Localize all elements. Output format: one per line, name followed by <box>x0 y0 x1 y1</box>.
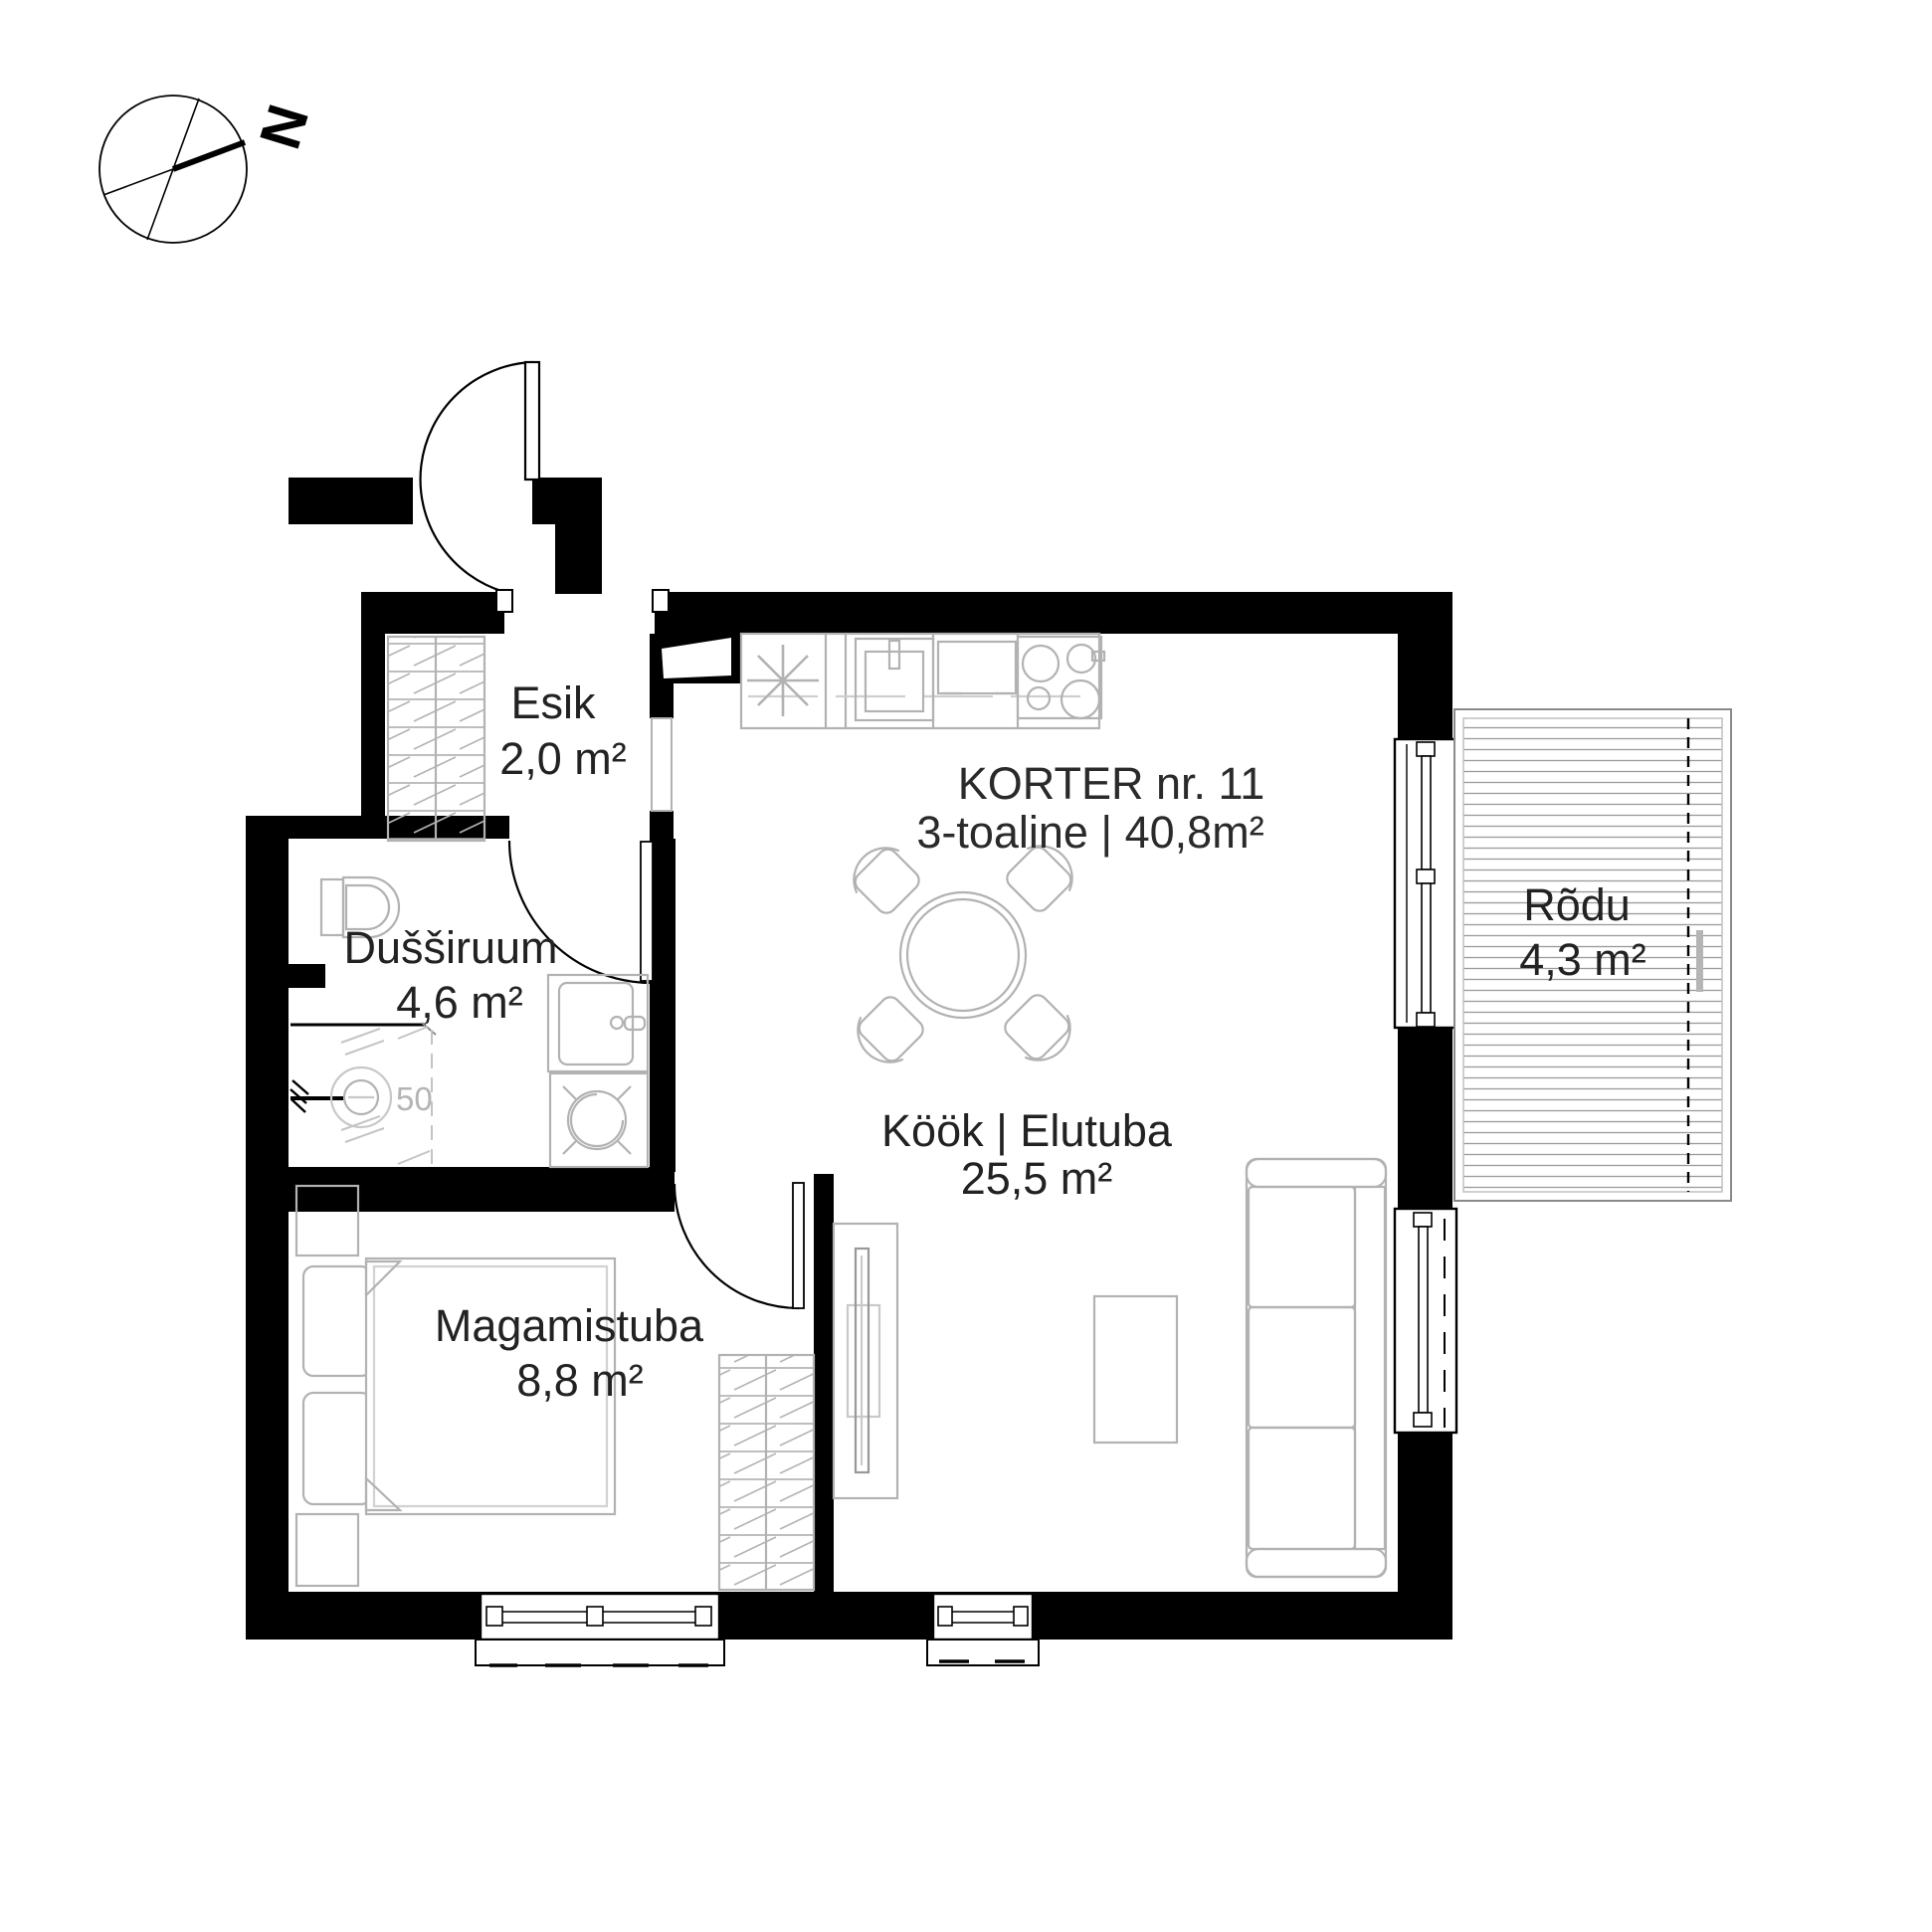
entrance-door-jamb-right <box>653 590 669 612</box>
bedroom-wardrobe <box>719 1355 814 1590</box>
room-area: 4,3 m² <box>1519 934 1646 985</box>
wall-top-main <box>655 592 1452 634</box>
room-name: Rõdu <box>1523 879 1631 930</box>
room-name: Köök | Elutuba <box>881 1105 1173 1156</box>
dining-table <box>900 892 1026 1018</box>
wall-shower-right <box>650 839 676 1172</box>
floor-plan-canvas: N <box>0 0 1932 1932</box>
room-area: 25,5 m² <box>961 1153 1113 1204</box>
balcony-railing-post <box>1696 930 1703 992</box>
apartment-title: KORTER nr. 11 <box>958 758 1264 809</box>
entrance-door-jamb-left <box>496 590 512 612</box>
wall-opening-frame <box>652 718 672 811</box>
wall-esik-left <box>361 634 385 816</box>
apartment-subtitle: 3-toaline | 40,8m² <box>916 807 1263 858</box>
wall-entrance-stub <box>289 478 413 524</box>
room-area: 2,0 m² <box>499 733 627 784</box>
wall-exterior-left <box>246 816 289 1640</box>
wall-exterior-right-upper <box>1398 634 1452 739</box>
room-area: 8,8 m² <box>516 1355 644 1406</box>
room-name: Dušširuum <box>343 922 557 973</box>
hallway-wardrobe <box>388 637 484 841</box>
wall-esik-right-lower <box>650 811 674 839</box>
wall-exterior-bottom <box>246 1592 1452 1640</box>
room-area: 4,6 m² <box>396 977 523 1028</box>
title-block: KORTER nr. 11 3-toaline | 40,8m² <box>916 758 1264 858</box>
balcony-door <box>1395 739 1456 1028</box>
wall-bedroom-living <box>814 1174 834 1596</box>
kitchen-counter <box>741 634 1104 728</box>
wall-exterior-right-lower <box>1398 1433 1452 1592</box>
room-name: Esik <box>510 677 596 728</box>
wall-entrance-corner-return <box>555 524 602 594</box>
bedroom-window <box>476 1594 724 1665</box>
wall-exterior-right-middle <box>1398 1028 1452 1209</box>
living-right-window <box>1395 1209 1456 1433</box>
wall-entrance-corner <box>532 478 602 524</box>
wall-shower-bottom <box>289 1167 675 1212</box>
shower-drain-label: 50 <box>396 1080 433 1117</box>
bedroom-window-sill <box>476 1640 724 1665</box>
bedroom-door-leaf <box>793 1183 804 1308</box>
wall-toilet-stub <box>289 964 325 988</box>
room-name: Magamistuba <box>435 1300 704 1351</box>
living-window <box>927 1594 1039 1665</box>
entrance-door-leaf <box>525 362 539 480</box>
shower-door-leaf <box>641 842 653 981</box>
wall-top-left <box>361 592 504 634</box>
sofa <box>1247 1159 1386 1577</box>
